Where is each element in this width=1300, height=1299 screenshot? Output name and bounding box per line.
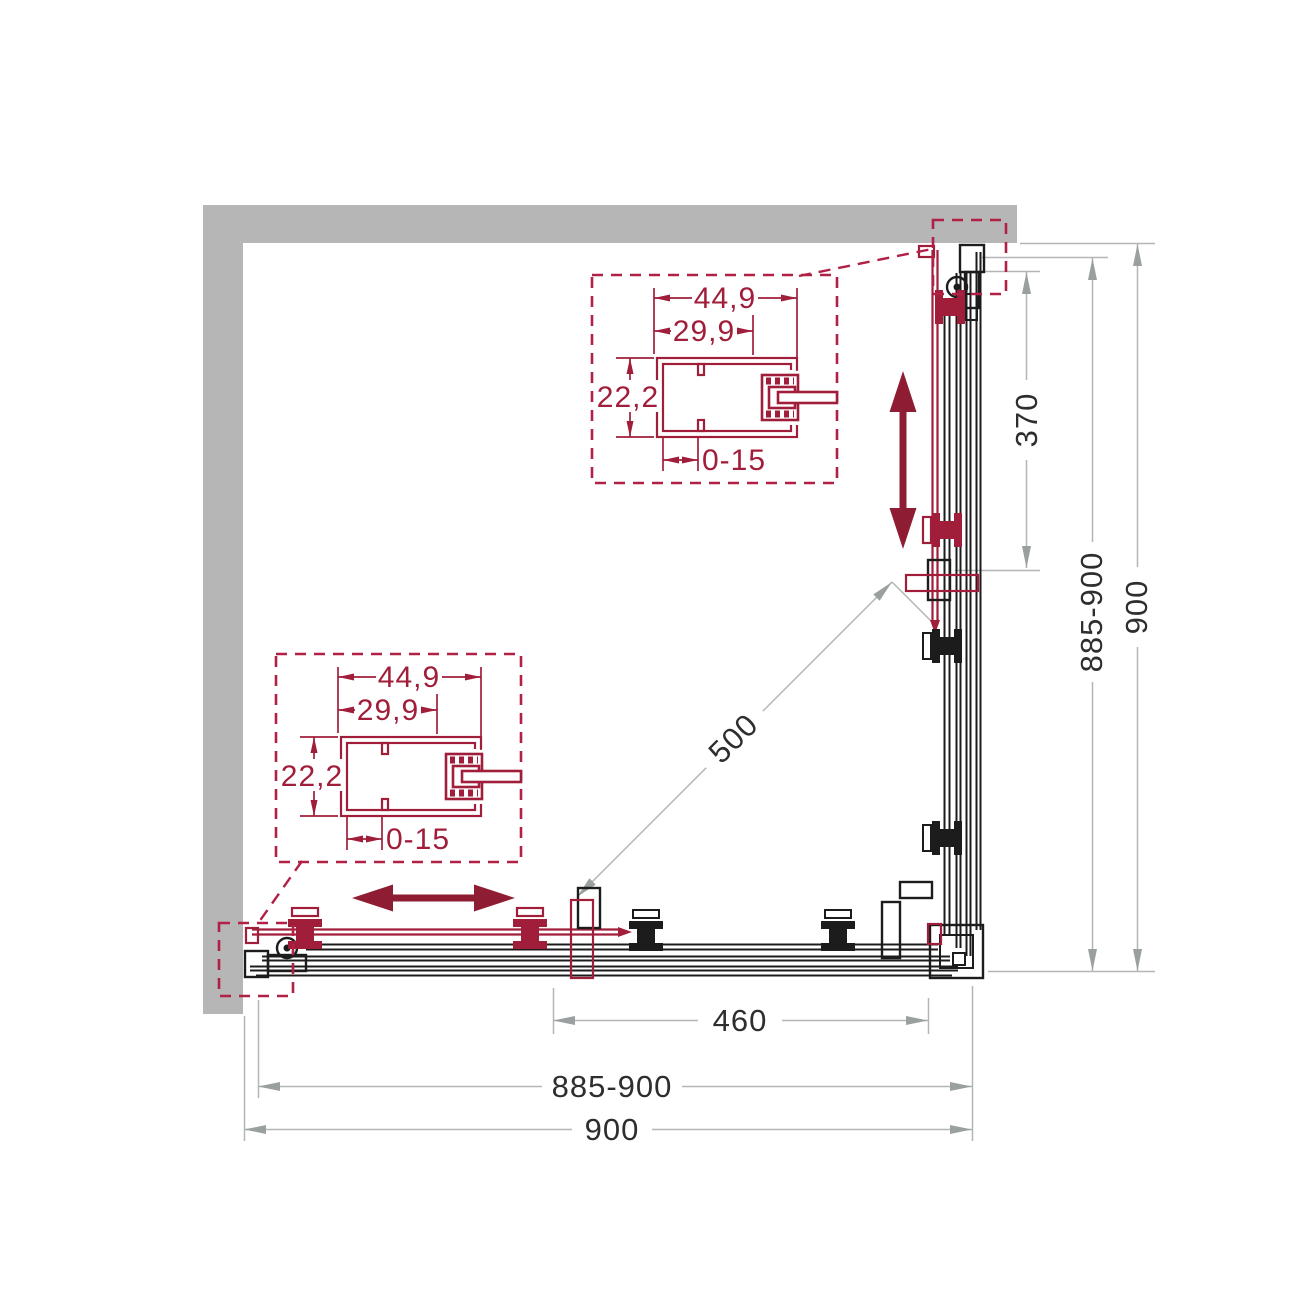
dimension-370: 370 <box>955 272 1044 571</box>
vertical-door-assembly <box>906 245 984 956</box>
detail-outer-width-label: 44,9 <box>694 282 756 315</box>
roller-carriage <box>821 910 855 951</box>
dim-depth-overall-label: 900 <box>1119 580 1154 635</box>
roller-carriage <box>923 821 962 855</box>
dimension-depth-overall: 900 <box>988 244 1155 972</box>
detail-dim-depth: 22,2 <box>595 358 661 437</box>
concrete-wall <box>203 205 1017 1014</box>
wall-top-band <box>203 205 1017 243</box>
door-handle-horizontal <box>571 888 600 978</box>
detail-dim-depth: 22,2 <box>279 737 345 816</box>
profile-section-drawing <box>657 358 837 437</box>
dim-width-overall-label: 900 <box>585 1112 640 1147</box>
wall-left-band <box>203 243 243 1014</box>
profile-detail-box-upper: 44,9 29,9 22,2 0-15 <box>592 275 837 483</box>
horizontal-door-assembly <box>245 882 958 978</box>
detail-inner-width-label: 29,9 <box>673 315 735 348</box>
slide-arrow-horizontal <box>352 885 515 912</box>
dim-depth-adjustable-label: 885-900 <box>1074 552 1109 673</box>
roller-carriage <box>923 513 962 547</box>
detail-adjustment-label: 0-15 <box>386 823 450 856</box>
glass-panel <box>778 392 837 403</box>
dimension-depth-adjustable: 885-900 <box>982 258 1109 972</box>
dimension-diagonal-entry: 500 <box>577 582 934 897</box>
detail-leader-top <box>799 249 932 276</box>
dimension-door-opening: 460 <box>553 988 929 1038</box>
detail-depth-label: 22,2 <box>281 760 343 793</box>
slide-arrow-vertical <box>890 371 917 549</box>
detail-dim-wall-adjustment: 0-15 <box>663 437 766 477</box>
detail-leader-bottom <box>259 861 302 922</box>
detail-depth-label: 22,2 <box>597 381 659 414</box>
profile-detail-box-lower: 44,9 29,9 22,2 0-15 <box>276 654 521 862</box>
dim-door-opening-label: 460 <box>713 1003 768 1038</box>
wall-profile-left <box>245 951 268 977</box>
detail-dim-wall-adjustment: 0-15 <box>347 816 450 856</box>
detail-inner-width-label: 29,9 <box>357 694 419 727</box>
profile-section-drawing <box>341 737 521 816</box>
detail-adjustment-label: 0-15 <box>702 444 766 477</box>
roller-carriage <box>629 910 663 951</box>
detail-outer-width-label: 44,9 <box>378 661 440 694</box>
technical-drawing-canvas: 370 885-900 900 460 <box>0 0 1300 1299</box>
detail-dim-inner-width: 29,9 <box>654 314 753 355</box>
dim-width-adjustable-label: 885-900 <box>552 1069 673 1104</box>
roller-carriage <box>923 629 962 663</box>
dim-door-travel-label: 370 <box>1009 393 1044 448</box>
detail-dim-inner-width: 29,9 <box>338 693 437 734</box>
corner-bracket-horizontal <box>900 882 932 898</box>
glass-panel <box>462 771 521 782</box>
